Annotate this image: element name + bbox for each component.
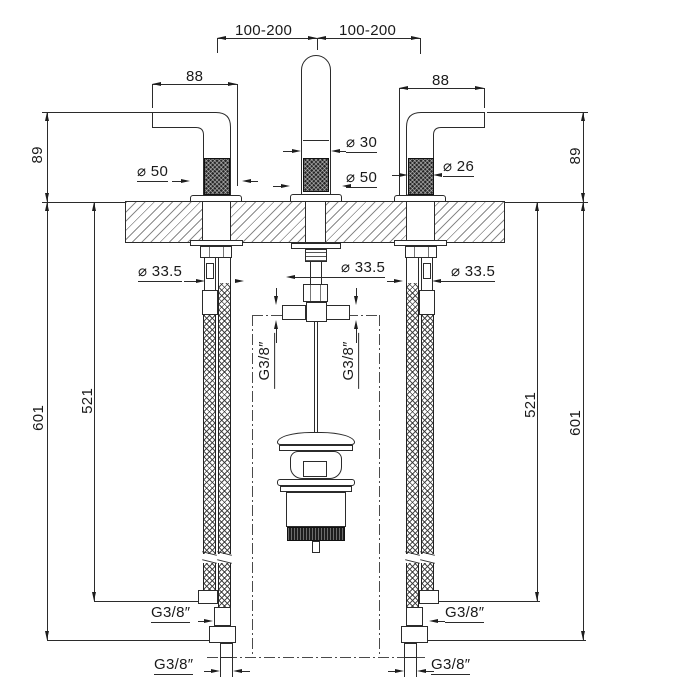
left-supply-thread-stub [220, 643, 233, 658]
dim-line [47, 202, 48, 640]
pop-up-rod [314, 322, 318, 432]
dim-line [251, 181, 258, 182]
dim-line [388, 671, 395, 672]
left-handle-knurl-grip [204, 158, 230, 195]
service-box-right-centerline [379, 315, 380, 658]
right-shank-cutout [406, 202, 435, 242]
arrowhead [45, 631, 49, 640]
arrowhead [274, 320, 278, 329]
waste-body [286, 492, 346, 527]
spout-joint-line [303, 140, 329, 141]
waste-collar-upper [277, 479, 355, 486]
arrowhead [286, 275, 295, 279]
arrowhead [211, 669, 220, 673]
waste-bottom-pin [312, 541, 320, 553]
left-hose-b-braid-lower [218, 563, 231, 607]
arrowhead [581, 202, 585, 211]
arrowhead [196, 279, 205, 283]
left-hose-a-braid [203, 315, 216, 554]
arrowhead [317, 36, 326, 40]
right-hose-b-tail [406, 258, 419, 283]
ext-line [420, 38, 421, 54]
arrowhead [535, 592, 539, 601]
arrowhead [354, 296, 358, 305]
arrowhead [354, 320, 358, 329]
dim-label-span-right: 100-200 [339, 23, 396, 39]
dim-line [295, 277, 342, 278]
arrowhead [394, 279, 403, 283]
ext-line [505, 202, 588, 203]
right-handle-base-flange [394, 195, 446, 202]
dim-label-tee-thread-right: G3/8″ [341, 333, 359, 389]
ext-line [428, 640, 586, 641]
dim-label-grip-right: ⌀ 26 [443, 159, 474, 177]
arrowhead [292, 149, 301, 153]
dim-label-width-right: 88 [432, 73, 449, 89]
arrowhead [45, 193, 49, 202]
spout-mounting-nut [305, 249, 327, 262]
arrowhead [535, 202, 539, 211]
technical-drawing: 100-200 100-200 88 88 89 89 601 521 521 … [0, 0, 700, 700]
right-valve-mounting-nut [405, 246, 437, 258]
dim-label-hole-right: ⌀ 33.5 [451, 264, 495, 282]
tee-fitting-body [306, 302, 327, 322]
ext-line [487, 112, 588, 113]
dim-line [426, 671, 434, 672]
dim-label-height-left: 89 [30, 135, 46, 175]
dim-line [242, 671, 250, 672]
ext-line [416, 658, 417, 677]
arrowhead [411, 36, 420, 40]
supply-level-centerline [207, 657, 425, 658]
arrowhead [204, 619, 213, 623]
right-supply-hex-nut [401, 626, 428, 643]
dim-line [441, 281, 451, 282]
ext-line [439, 601, 540, 602]
right-handle-knurl-grip [408, 158, 434, 195]
dim-label-supply-thread-right: G3/8″ [431, 657, 470, 675]
ext-line [47, 640, 209, 641]
arrowhead [417, 669, 426, 673]
arrowhead [308, 36, 317, 40]
ext-line [42, 112, 152, 113]
ext-line [232, 658, 233, 677]
ext-line [220, 658, 221, 677]
left-supply-hex-nut [209, 626, 236, 643]
left-nut-facet-line [223, 247, 224, 257]
arrowhead [45, 202, 49, 211]
dim-label-flange-left: ⌀ 50 [137, 164, 168, 182]
dim-label-length-inner-right: 521 [523, 385, 539, 425]
arrowhead [429, 619, 438, 623]
right-hose-a-braid-lower [421, 563, 434, 590]
spout-knurl-band [303, 158, 329, 192]
spout-tailpiece [310, 262, 322, 284]
dim-line [204, 671, 211, 672]
ext-line [399, 88, 400, 196]
waste-thread-band [287, 527, 345, 541]
dim-label-length-outer-right: 601 [568, 403, 584, 443]
ext-line [152, 84, 153, 108]
dim-line [392, 175, 399, 176]
arrowhead [233, 669, 242, 673]
dim-label-hole-left: ⌀ 33.5 [138, 264, 182, 282]
left-hose-a-coupling [202, 290, 218, 315]
right-hose-a-coupling [419, 290, 435, 315]
spout-base-flange [290, 194, 342, 202]
arrowhead [331, 149, 340, 153]
dim-line [438, 621, 445, 622]
arrowhead [281, 184, 290, 188]
left-hose-b-tail [218, 258, 231, 283]
left-hose-b-braid [218, 283, 231, 554]
right-nut-facet-line [428, 247, 429, 257]
right-hose-b-braid [406, 283, 419, 554]
waste-cap [277, 432, 355, 445]
arrowhead [399, 173, 408, 177]
dim-label-hole-center: ⌀ 33.5 [341, 260, 385, 278]
ext-line [484, 88, 485, 108]
tee-hex-nut [303, 284, 328, 302]
right-supply-coupling [406, 607, 423, 626]
dim-label-height-right: 89 [568, 136, 584, 176]
left-valve-mounting-nut [200, 246, 232, 258]
tee-port-left [282, 305, 306, 320]
dim-label-length-inner-left: 521 [80, 381, 96, 421]
arrowhead [228, 82, 237, 86]
waste-lever-slot [303, 461, 327, 477]
dim-label-span-left: 100-200 [235, 23, 292, 39]
dim-line [184, 281, 196, 282]
left-hose-a-elbow [198, 590, 218, 604]
left-hose-a-clip [206, 263, 214, 279]
right-nut-facet-line [414, 247, 415, 257]
arrowhead [581, 112, 585, 121]
ext-line [237, 84, 238, 186]
right-hose-a-elbow [419, 590, 439, 604]
dim-line [283, 151, 292, 152]
center-shank-cutout [305, 202, 326, 242]
left-shank-cutout [202, 202, 231, 242]
right-hose-a-clip [423, 263, 431, 279]
dim-label-tee-thread-left: G3/8″ [257, 333, 275, 389]
dim-line [340, 151, 346, 152]
arrowhead [475, 86, 484, 90]
dim-label-length-outer-left: 601 [31, 398, 47, 438]
arrowhead [217, 36, 226, 40]
dim-line [276, 329, 277, 343]
tee-hex-facet-line [320, 285, 321, 301]
right-hose-b-braid-lower [406, 563, 419, 607]
arrowhead [581, 193, 585, 202]
dim-label-spout-dia: ⌀ 30 [346, 135, 377, 153]
arrowhead [152, 82, 161, 86]
arrowhead [92, 592, 96, 601]
dim-label-supply-thread-left: G3/8″ [154, 657, 193, 675]
arrowhead [92, 202, 96, 211]
dim-line [47, 112, 48, 202]
right-supply-thread-stub [404, 643, 417, 658]
arrowhead [399, 86, 408, 90]
arrowhead [433, 173, 442, 177]
dim-label-hose-thread-right: G3/8″ [445, 605, 484, 623]
arrowhead [432, 279, 441, 283]
ext-line [217, 38, 218, 53]
ext-line [42, 202, 125, 203]
left-hose-a-braid-lower [203, 563, 216, 590]
dim-label-hose-thread-left: G3/8″ [151, 605, 190, 623]
tee-hex-facet-line [310, 285, 311, 301]
arrowhead [395, 669, 404, 673]
arrowhead [274, 296, 278, 305]
dim-line [387, 281, 394, 282]
arrowhead [342, 184, 351, 188]
ext-line [404, 658, 405, 677]
tee-port-right [326, 305, 350, 320]
dim-line [273, 186, 281, 187]
arrowhead [181, 179, 190, 183]
dim-label-width-left: 88 [186, 69, 203, 85]
left-supply-coupling [214, 607, 231, 626]
arrowhead [235, 279, 244, 283]
left-handle-base-flange [190, 195, 242, 202]
right-hose-a-braid [421, 315, 434, 554]
arrowhead [581, 631, 585, 640]
arrowhead [45, 112, 49, 121]
service-box-left-centerline [252, 315, 253, 658]
arrowhead [242, 179, 251, 183]
ext-line [317, 38, 318, 50]
left-nut-facet-line [209, 247, 210, 257]
ext-line [94, 601, 199, 602]
